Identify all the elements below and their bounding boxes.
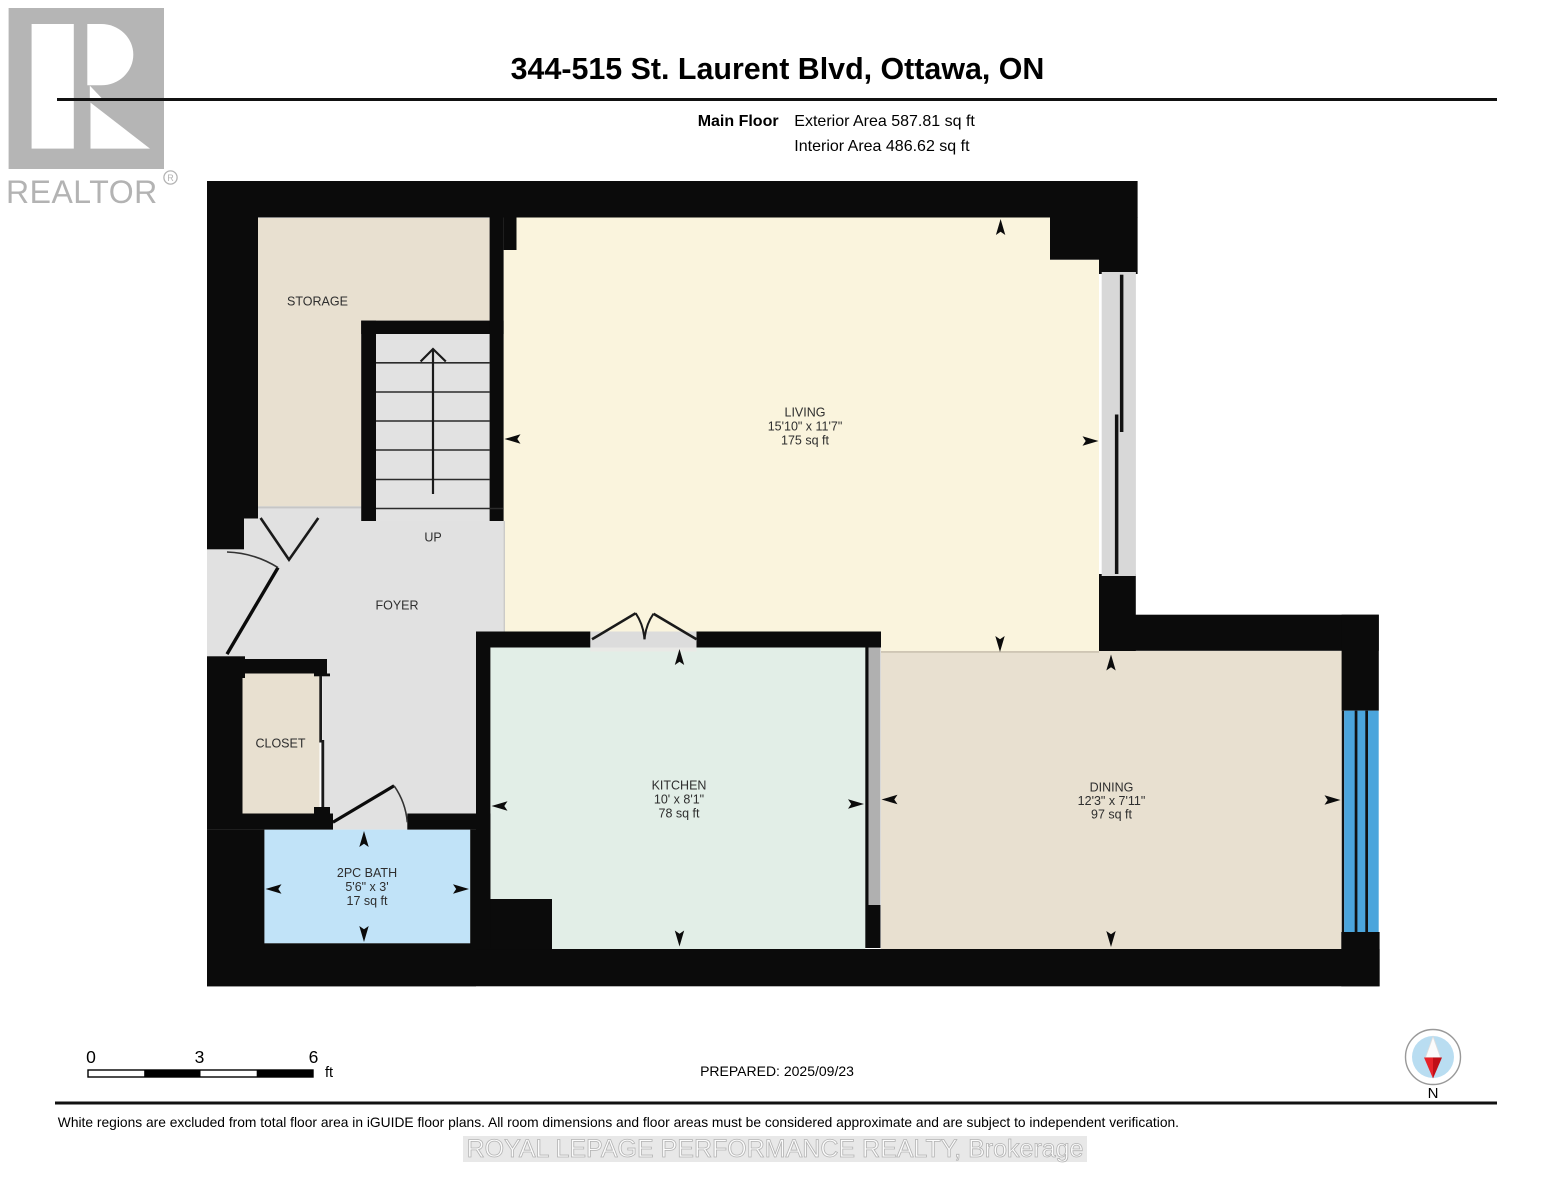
svg-text:5'6" x 3': 5'6" x 3' bbox=[345, 880, 388, 894]
svg-text:REALTOR: REALTOR bbox=[6, 174, 158, 210]
svg-text:R: R bbox=[167, 173, 174, 183]
svg-text:10' x 8'1": 10' x 8'1" bbox=[654, 793, 704, 807]
svg-text:KITCHEN: KITCHEN bbox=[652, 779, 707, 793]
svg-text:FOYER: FOYER bbox=[375, 599, 418, 613]
svg-text:344-515 St. Laurent Blvd, Otta: 344-515 St. Laurent Blvd, Ottawa, ON bbox=[511, 52, 1045, 86]
svg-text:STORAGE: STORAGE bbox=[287, 295, 348, 309]
svg-text:Main Floor: Main Floor bbox=[698, 113, 779, 130]
svg-text:2PC BATH: 2PC BATH bbox=[337, 866, 397, 880]
svg-text:CLOSET: CLOSET bbox=[255, 737, 305, 751]
svg-text:0: 0 bbox=[86, 1047, 96, 1067]
svg-text:97 sq ft: 97 sq ft bbox=[1091, 808, 1133, 822]
svg-text:DINING: DINING bbox=[1090, 781, 1134, 795]
svg-text:17 sq ft: 17 sq ft bbox=[347, 894, 389, 908]
svg-text:LIVING: LIVING bbox=[785, 406, 826, 420]
svg-text:15'10" x 11'7": 15'10" x 11'7" bbox=[768, 420, 843, 434]
svg-text:175 sq ft: 175 sq ft bbox=[781, 434, 829, 448]
svg-text:12'3" x 7'11": 12'3" x 7'11" bbox=[1078, 794, 1146, 808]
svg-text:White regions are excluded fro: White regions are excluded from total fl… bbox=[58, 1115, 1179, 1130]
svg-text:ft: ft bbox=[325, 1065, 333, 1081]
svg-text:Exterior Area 587.81 sq ft: Exterior Area 587.81 sq ft bbox=[794, 113, 975, 130]
svg-text:Interior Area 486.62 sq ft: Interior Area 486.62 sq ft bbox=[794, 138, 970, 155]
svg-text:3: 3 bbox=[195, 1047, 205, 1067]
svg-text:PREPARED: 2025/09/23: PREPARED: 2025/09/23 bbox=[700, 1063, 854, 1079]
svg-text:ROYAL LEPAGE PERFORMANCE REALT: ROYAL LEPAGE PERFORMANCE REALTY, Brokera… bbox=[467, 1135, 1084, 1163]
svg-text:UP: UP bbox=[424, 531, 441, 545]
svg-text:N: N bbox=[1428, 1085, 1439, 1102]
svg-text:78 sq ft: 78 sq ft bbox=[659, 807, 701, 821]
svg-text:6: 6 bbox=[309, 1047, 319, 1067]
